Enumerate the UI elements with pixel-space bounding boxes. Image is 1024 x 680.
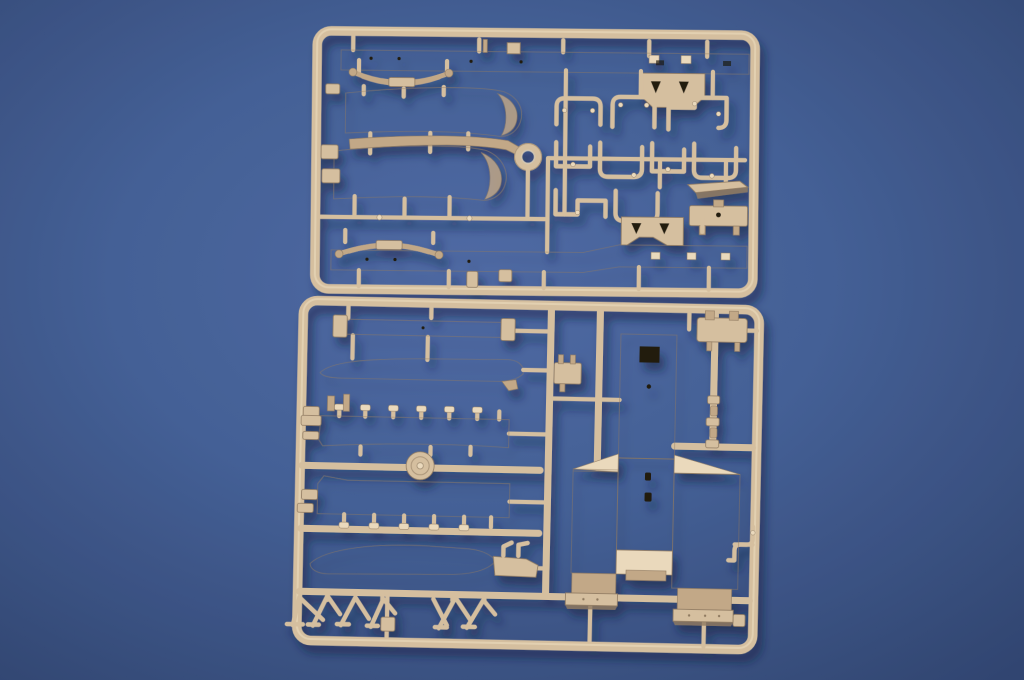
photo-canvas [0, 0, 1024, 680]
wheel-disc [406, 451, 435, 480]
small-clip [467, 271, 478, 287]
sprue-photo [0, 0, 1024, 680]
cab-square-hole [639, 346, 659, 362]
small-clip [499, 270, 512, 282]
